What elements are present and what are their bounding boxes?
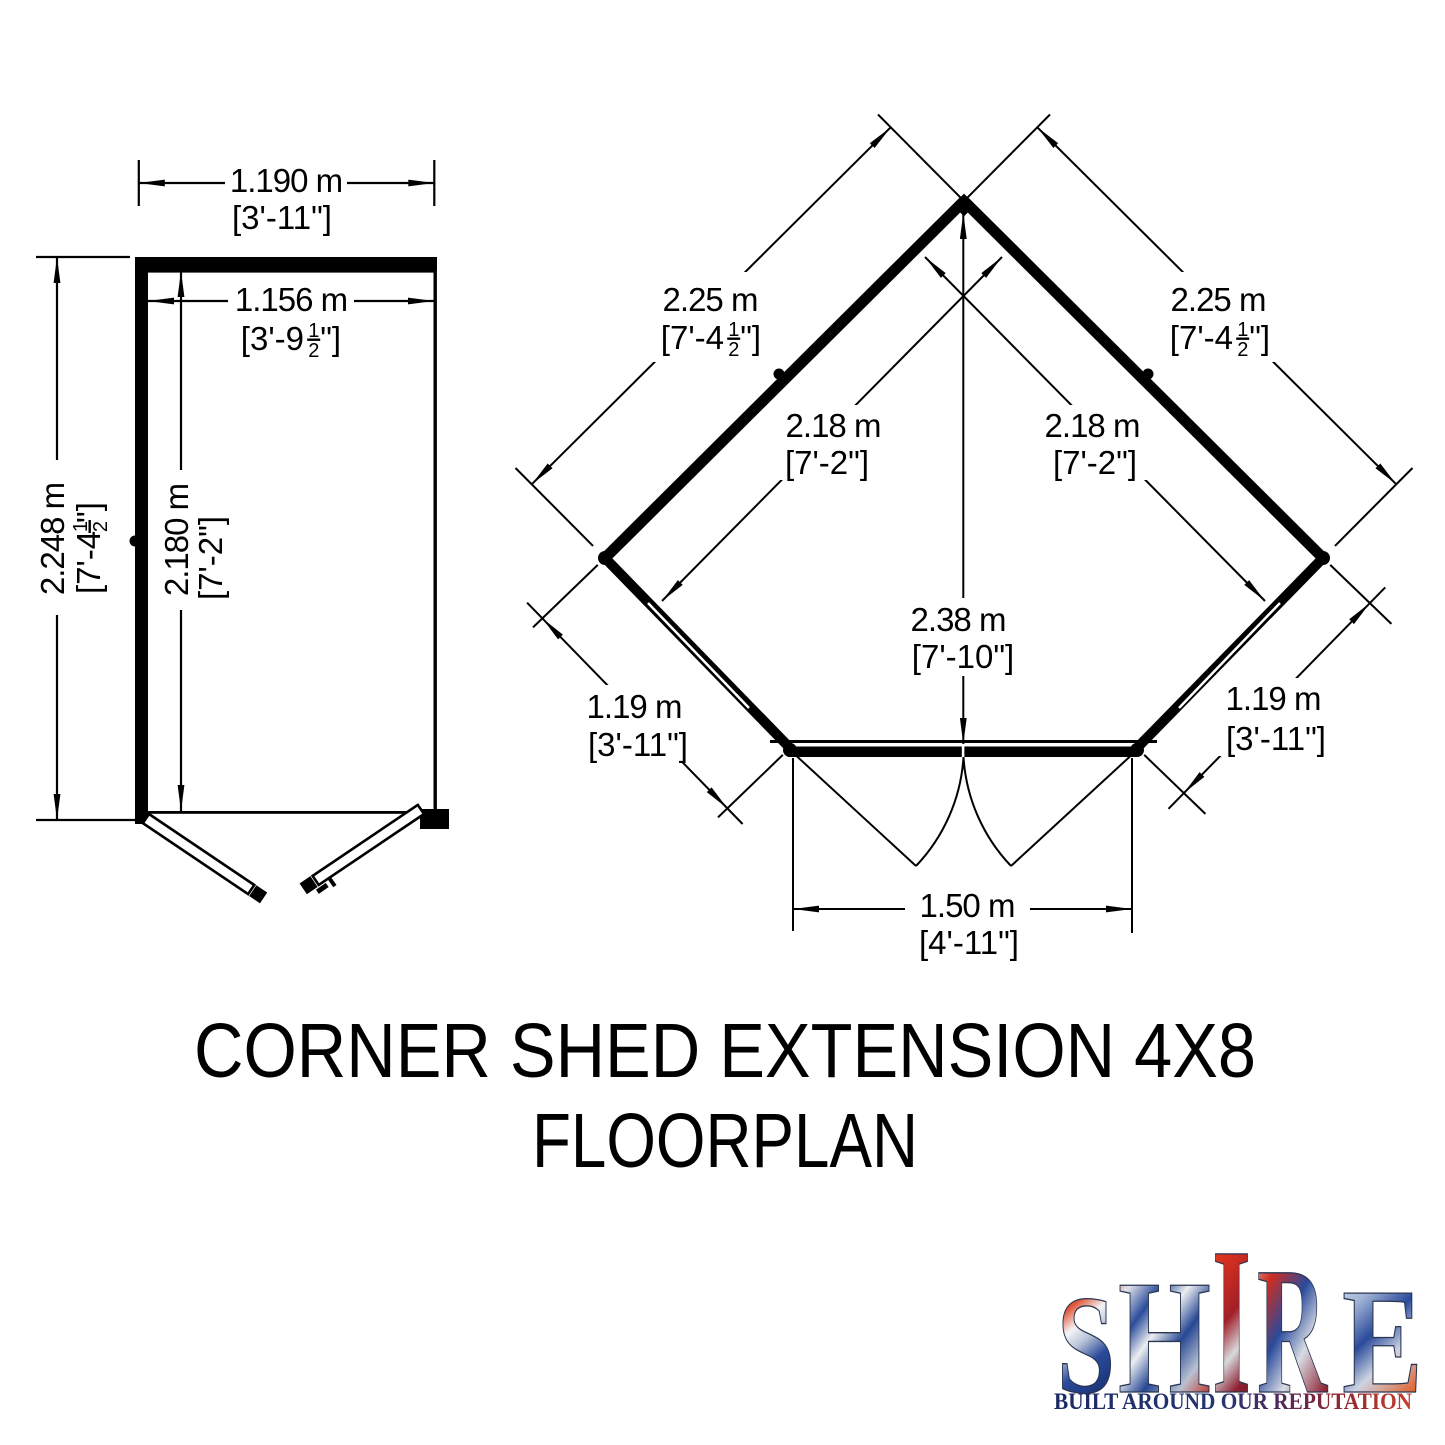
svg-text:"]: "] [70, 502, 107, 523]
svg-text:2: 2 [1237, 339, 1248, 361]
svg-text:[7'-4: [7'-4 [70, 531, 107, 594]
svg-text:[7'-10"]: [7'-10"] [912, 638, 1014, 675]
svg-text:2.25 m: 2.25 m [1171, 281, 1266, 318]
svg-text:[3'-11"]: [3'-11"] [232, 199, 332, 236]
svg-text:"]: "] [1249, 319, 1270, 356]
svg-text:2.18 m: 2.18 m [1045, 407, 1140, 444]
svg-text:[7'-2"]: [7'-2"] [785, 444, 869, 481]
svg-text:[7'-2"]: [7'-2"] [192, 516, 229, 600]
svg-text:2: 2 [728, 339, 739, 361]
svg-text:"]: "] [320, 320, 341, 357]
svg-text:1.190 m: 1.190 m [230, 162, 342, 199]
svg-text:[7'-4: [7'-4 [1170, 319, 1233, 356]
svg-text:[3'-11"]: [3'-11"] [588, 726, 688, 763]
svg-text:CORNER SHED EXTENSION 4X8: CORNER SHED EXTENSION 4X8 [194, 1008, 1256, 1094]
svg-text:1.19 m: 1.19 m [587, 688, 682, 725]
svg-text:1.156 m: 1.156 m [235, 281, 347, 318]
svg-text:1.50 m: 1.50 m [920, 887, 1015, 924]
svg-text:1.19 m: 1.19 m [1226, 680, 1321, 717]
svg-text:"]: "] [740, 319, 761, 356]
svg-text:FLOORPLAN: FLOORPLAN [532, 1098, 918, 1184]
svg-text:BUILT AROUND OUR REPUTATION: BUILT AROUND OUR REPUTATION [1054, 1389, 1412, 1415]
svg-text:2.38 m: 2.38 m [911, 601, 1006, 638]
svg-text:[7'-2"]: [7'-2"] [1053, 444, 1137, 481]
svg-text:2.248 m: 2.248 m [34, 483, 71, 595]
svg-text:2: 2 [308, 340, 319, 362]
svg-text:2.180 m: 2.180 m [158, 484, 195, 596]
svg-text:2.18 m: 2.18 m [786, 407, 881, 444]
svg-text:[7'-4: [7'-4 [661, 319, 724, 356]
svg-text:[3'-9: [3'-9 [241, 320, 304, 357]
svg-text:[4'-11"]: [4'-11"] [919, 924, 1019, 961]
svg-text:[3'-11"]: [3'-11"] [1226, 720, 1326, 757]
svg-text:2.25 m: 2.25 m [663, 281, 758, 318]
